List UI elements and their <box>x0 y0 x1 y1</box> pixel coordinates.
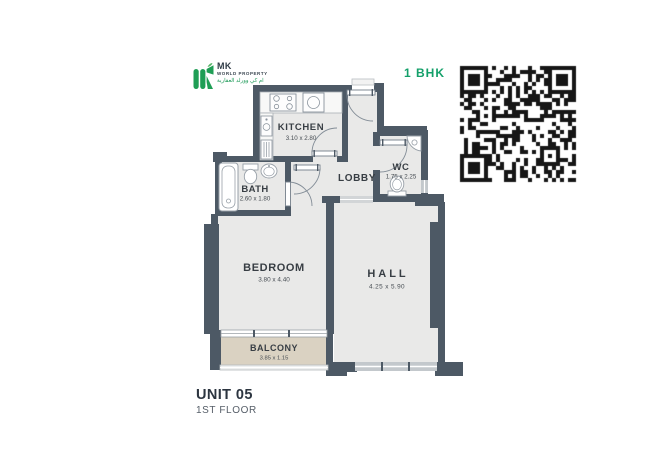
bath-sink-icon <box>261 164 277 178</box>
hall-dims: 4.25 x 5.90 <box>369 284 405 291</box>
flyer-page: MK WORLD PROPERTY ام كي وورلد العقارية 1… <box>0 0 668 452</box>
kitchen-label: KITCHEN <box>278 122 324 133</box>
kitchen-sink-icon <box>303 93 324 112</box>
bedroom-floor <box>218 214 328 334</box>
wc-doorway-floor <box>371 144 382 172</box>
balcony-railing <box>220 365 328 370</box>
bathtub-icon <box>219 163 238 211</box>
unit-number: UNIT 05 <box>196 387 253 403</box>
prep-sink-icon <box>261 116 272 136</box>
entry-step <box>352 79 374 85</box>
dish-rack-icon <box>261 140 272 159</box>
bedroom-dims: 3.80 x 4.40 <box>258 277 290 284</box>
hall-threshold <box>340 196 373 203</box>
wc-dims: 1.75 x 2.25 <box>386 174 417 181</box>
bedroom-label: BEDROOM <box>243 262 305 274</box>
bath-label: BATH <box>241 184 268 195</box>
hall-label: HALL <box>367 268 408 280</box>
hall-window <box>355 362 437 371</box>
floor-number: 1ST FLOOR <box>196 405 257 416</box>
stove-icon <box>270 94 296 111</box>
kitchen-dims: 3.10 x 2.80 <box>286 135 317 142</box>
balcony-label: BALCONY <box>250 343 298 353</box>
floor-plan: KITCHEN 3.10 x 2.80 LOBBY WC 1.75 x 2.25… <box>0 0 668 452</box>
wc-window <box>421 180 428 193</box>
bath-toilet-icon <box>243 164 258 184</box>
lobby-label: LOBBY <box>338 173 376 184</box>
balcony-sliding-window <box>221 330 327 337</box>
bath-dims: 2.60 x 1.80 <box>240 196 271 203</box>
balcony-dims: 3.85 x 1.15 <box>260 356 289 362</box>
wc-label: WC <box>392 162 409 173</box>
